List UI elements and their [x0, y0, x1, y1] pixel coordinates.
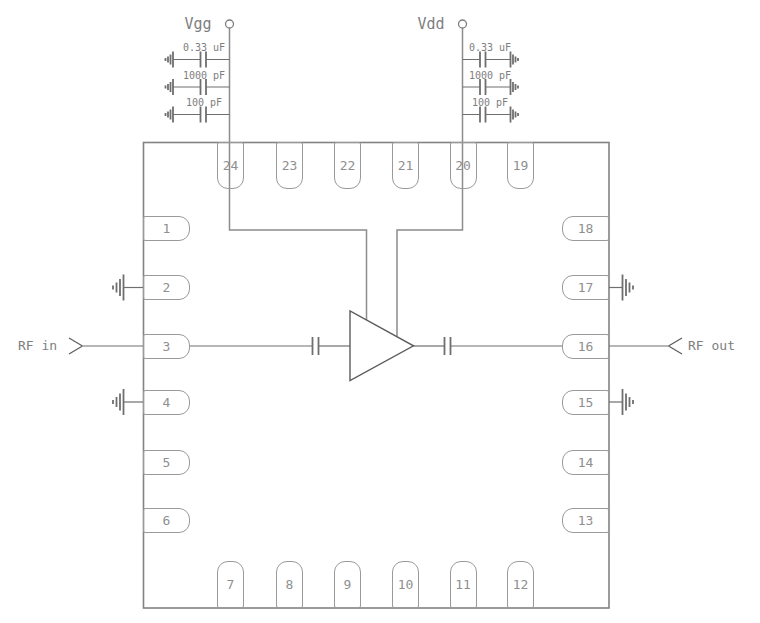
- vdd-bypass-cap-2: [463, 79, 519, 95]
- vdd-cap-value-1: 0.33 uF: [454, 42, 526, 53]
- dc-block-cap-input-icon: [313, 337, 319, 355]
- pin-23: 23: [276, 142, 303, 189]
- rf-signal-path: [190, 337, 562, 355]
- rf-out-label: RF out: [688, 338, 735, 353]
- schematic-linework: [0, 0, 760, 623]
- pin-11: 11: [450, 561, 477, 608]
- ground-icon-pin-4: [113, 389, 143, 415]
- pin-9: 9: [334, 561, 361, 608]
- vgg-cap-value-1: 0.33 uF: [168, 42, 240, 53]
- ground-icon: [166, 79, 174, 95]
- ground-icon-pin-2: [113, 275, 143, 301]
- pin-18: 18: [562, 216, 609, 241]
- vdd-cap-value-2: 1000 pF: [454, 70, 526, 81]
- ground-icon: [511, 52, 519, 68]
- rf-out-port: [609, 338, 682, 354]
- amplifier-icon: [350, 311, 414, 381]
- capacitor-icon: [201, 79, 207, 95]
- rf-out-arrow-icon: [669, 338, 683, 354]
- rf-in-label: RF in: [18, 338, 57, 353]
- rf-in-arrow-icon: [69, 338, 83, 354]
- pin-22: 22: [334, 142, 361, 189]
- rf-in-port: [69, 338, 143, 354]
- vgg-label: Vgg: [175, 15, 221, 33]
- vgg-bypass-cap-1: [166, 52, 230, 68]
- capacitor-icon: [201, 107, 207, 123]
- ground-icon-pin-17: [609, 275, 633, 301]
- capacitor-icon: [201, 52, 207, 68]
- capacitor-icon: [480, 107, 486, 123]
- vdd-cap-value-3: 100 pF: [454, 97, 526, 108]
- vdd-bypass-cap-1: [463, 52, 519, 68]
- dc-block-cap-output-icon: [445, 337, 451, 355]
- vgg-cap-value-3: 100 pF: [168, 97, 240, 108]
- pin-19: 19: [507, 142, 534, 189]
- ground-icon: [511, 79, 519, 95]
- capacitor-icon: [480, 52, 486, 68]
- ground-icon-pin-15: [609, 389, 633, 415]
- pin-24: 24: [217, 142, 244, 189]
- vgg-cap-value-2: 1000 pF: [168, 70, 240, 81]
- pin-8: 8: [276, 561, 303, 608]
- ground-icon: [511, 107, 519, 123]
- pin-3: 3: [143, 334, 190, 359]
- pin-14: 14: [562, 450, 609, 475]
- pin-5: 5: [143, 450, 190, 475]
- ground-icon: [166, 52, 174, 68]
- pin-20: 20: [450, 142, 477, 189]
- pin-21: 21: [392, 142, 419, 189]
- pin-4: 4: [143, 390, 190, 415]
- pin-6: 6: [143, 508, 190, 533]
- vgg-bypass-cap-2: [166, 79, 230, 95]
- pin-15: 15: [562, 390, 609, 415]
- vgg-terminal-icon: [226, 20, 234, 28]
- pin-16: 16: [562, 334, 609, 359]
- schematic-canvas: 24 23 22 21 20 19 18 17 16 15 14 13 7 8 …: [0, 0, 760, 623]
- pin-2: 2: [143, 275, 190, 300]
- vdd-terminal-icon: [459, 20, 467, 28]
- pin-10: 10: [392, 561, 419, 608]
- pin-1: 1: [143, 216, 190, 241]
- vgg-bypass-cap-3: [166, 107, 230, 123]
- pin-12: 12: [507, 561, 534, 608]
- pin-17: 17: [562, 275, 609, 300]
- vdd-label: Vdd: [408, 15, 454, 33]
- pin-13: 13: [562, 508, 609, 533]
- capacitor-icon: [480, 79, 486, 95]
- vdd-bypass-cap-3: [463, 107, 519, 123]
- package-outline: [144, 143, 610, 609]
- pin-7: 7: [217, 561, 244, 608]
- ground-icon: [166, 107, 174, 123]
